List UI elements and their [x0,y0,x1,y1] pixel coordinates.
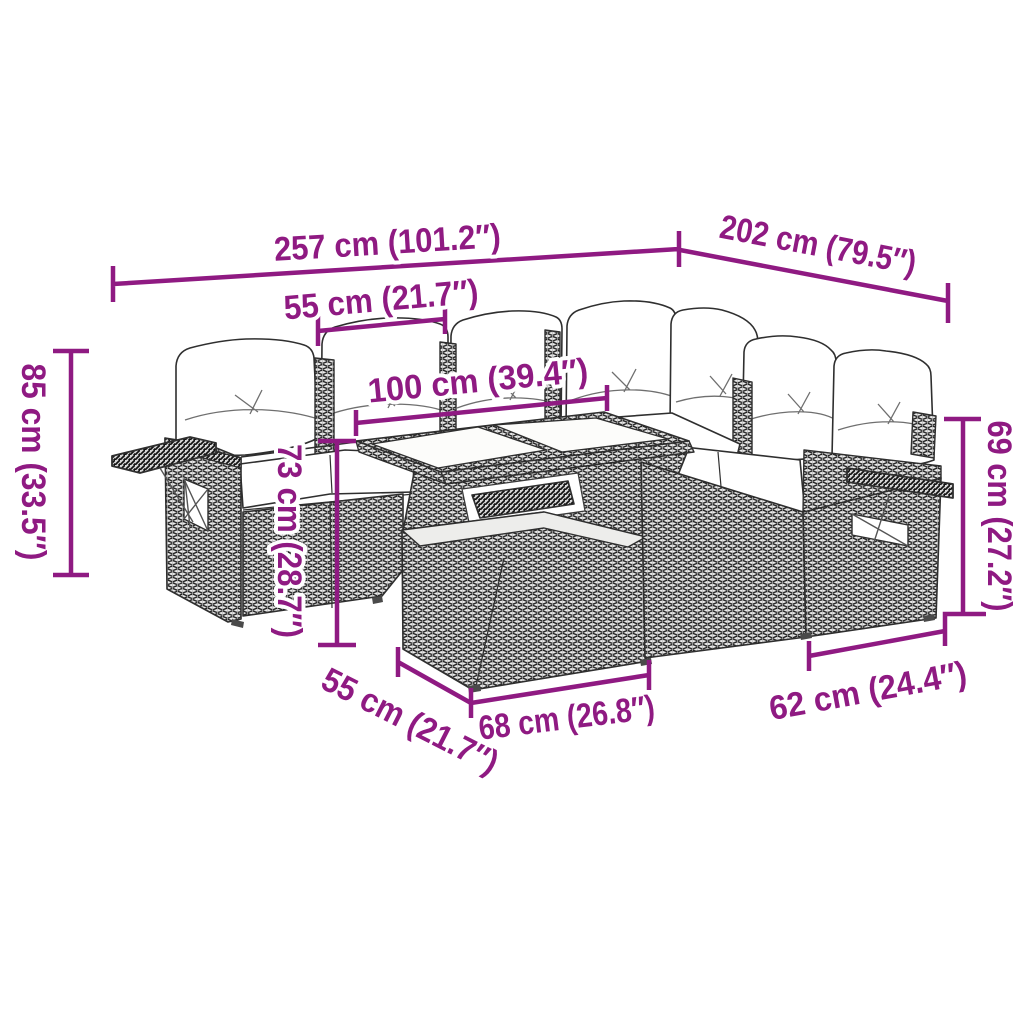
svg-text:85 cm (33.5″): 85 cm (33.5″) [14,364,52,561]
svg-text:69 cm (27.2″): 69 cm (27.2″) [980,421,1018,612]
svg-text:73 cm (28.7″): 73 cm (28.7″) [270,444,308,638]
